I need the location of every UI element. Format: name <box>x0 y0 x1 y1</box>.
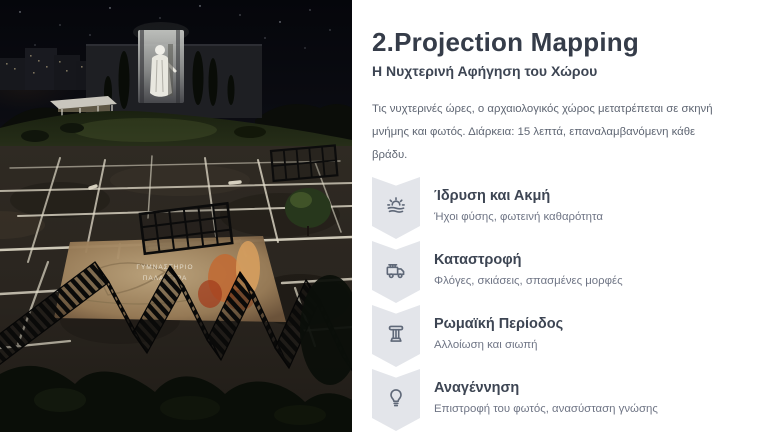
phase-item-destruction: Καταστροφή Φλόγες, σκιάσεις, σπασμένες μ… <box>372 241 734 303</box>
phase-description: Φλόγες, σκιάσεις, σπασμένες μορφές <box>434 275 623 287</box>
site-render-image: ΓΥΜΝΑΣΤΗΡΙΟ ΠΑΛΑΙΣΤΡΑ <box>0 0 352 432</box>
phase-item-foundation: Ίδρυση και Ακμή Ήχοι φύσης, φωτεινή καθα… <box>372 177 734 239</box>
site-night-render: ΓΥΜΝΑΣΤΗΡΙΟ ΠΑΛΑΙΣΤΡΑ <box>0 0 352 432</box>
grid-canopy-right <box>271 145 337 180</box>
chevron-badge <box>372 305 420 367</box>
phase-item-roman: Ρωμαϊκή Περίοδος Αλλοίωση και σιωπή <box>372 305 734 367</box>
phase-description: Επιστροφή του φωτός, ανασύσταση γνώσης <box>434 403 658 415</box>
column-icon <box>383 321 409 347</box>
phase-description: Ήχοι φύσης, φωτεινή καθαρότητα <box>434 211 603 223</box>
phase-title: Καταστροφή <box>434 252 623 268</box>
presentation-slide: ΓΥΜΝΑΣΤΗΡΙΟ ΠΑΛΑΙΣΤΡΑ <box>0 0 768 432</box>
phase-list: Ίδρυση και Ακμή Ήχοι φύσης, φωτεινή καθα… <box>372 177 734 432</box>
phase-item-rebirth: Αναγέννηση Επιστροφή του φωτός, ανασύστα… <box>372 369 734 431</box>
content-panel: 2.Projection Mapping Η Νυχτερινή Αφήγηση… <box>352 0 768 432</box>
phase-title: Ίδρυση και Ακμή <box>434 188 603 204</box>
slide-subtitle: Η Νυχτερινή Αφήγηση του Χώρου <box>372 63 734 79</box>
slide-title: 2.Projection Mapping <box>372 27 734 58</box>
phase-description: Αλλοίωση και σιωπή <box>434 339 563 351</box>
phase-title: Αναγέννηση <box>434 380 658 396</box>
lightbulb-icon <box>383 385 409 411</box>
chevron-badge <box>372 369 420 431</box>
chevron-badge <box>372 241 420 303</box>
chevron-badge <box>372 177 420 239</box>
sunrise-icon <box>383 193 409 219</box>
ground-label-line1: ΓΥΜΝΑΣΤΗΡΙΟ <box>136 264 193 271</box>
fire-truck-icon <box>383 257 409 283</box>
phase-title: Ρωμαϊκή Περίοδος <box>434 316 563 332</box>
intro-text: Τις νυχτερινές ώρες, ο αρχαιολογικός χώρ… <box>372 98 726 167</box>
